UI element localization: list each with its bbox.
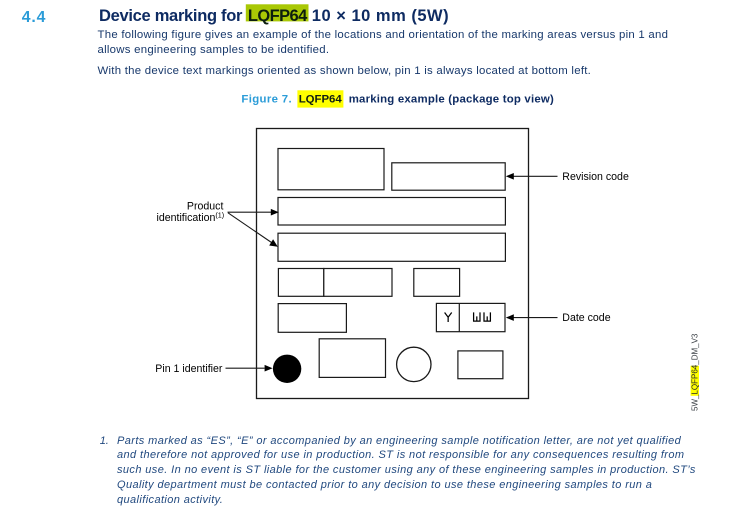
svg-text:LQFP64: LQFP64 <box>248 7 308 25</box>
svg-text:marking example (package top v: marking example (package top view) <box>349 93 554 105</box>
svg-text:Pin 1 identifier: Pin 1 identifier <box>155 363 223 375</box>
svg-text:Revision code: Revision code <box>562 171 629 183</box>
svg-text:10 × 10 mm (5W): 10 × 10 mm (5W) <box>312 7 449 25</box>
svg-text:5W_LQFP64_DM_V3: 5W_LQFP64_DM_V3 <box>691 333 700 411</box>
svg-text:Figure 7.: Figure 7. <box>241 93 292 105</box>
svg-text:4.4: 4.4 <box>22 9 47 26</box>
svg-text:Date code: Date code <box>562 312 610 324</box>
svg-text:Device marking for: Device marking for <box>99 7 243 25</box>
svg-text:LQFP64: LQFP64 <box>299 93 343 105</box>
svg-text:identification(1): identification(1) <box>156 211 224 224</box>
